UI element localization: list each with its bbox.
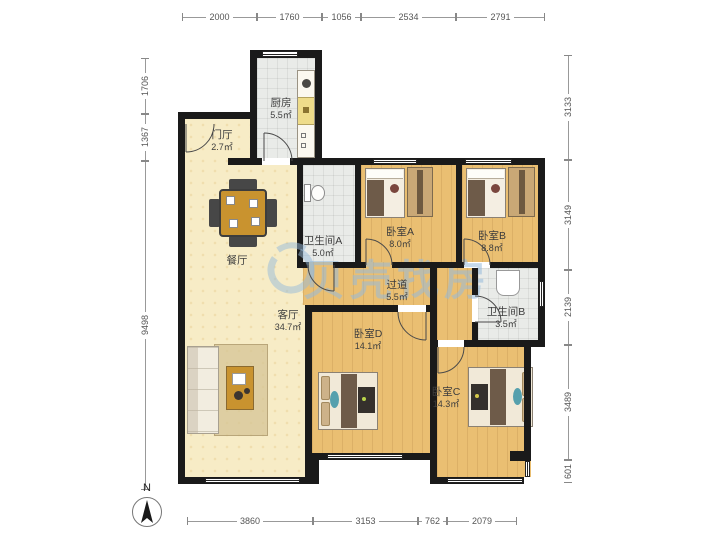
compass-needle-layer [0, 0, 720, 540]
floorplan-canvas: 贝壳找房 [0, 0, 720, 540]
compass-needle [141, 500, 153, 523]
